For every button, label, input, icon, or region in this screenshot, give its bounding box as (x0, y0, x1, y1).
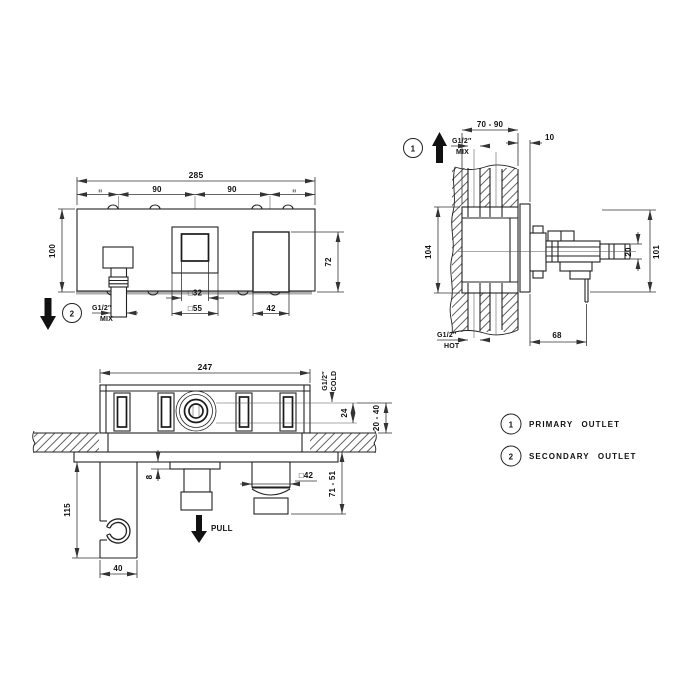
wall-plan-hatch (33, 431, 377, 453)
thread-bottom-label: G1/2″ (437, 332, 457, 339)
holder-ring-inner (110, 523, 126, 540)
up-arrow-icon (432, 132, 447, 146)
technical-drawing-canvas: 285 90 90 = = (0, 0, 700, 700)
callout-num-1: 1 (411, 145, 416, 154)
trim-plate-edge (74, 452, 338, 462)
rough-in-box-plan (100, 385, 310, 433)
dim-holder-width: 40 (113, 564, 123, 573)
dim-inner-square: □32 (188, 289, 203, 298)
dim-outer-square: □55 (188, 304, 203, 313)
thermostat-plate-front (172, 227, 218, 316)
dim-handle-square: □42 (299, 471, 314, 480)
dim-overall-width: 285 (189, 170, 204, 180)
pull-label: PULL (211, 524, 233, 533)
dim-depth-range-bottom: 20 - 40 (372, 404, 381, 431)
dim-plate-offset: 10 (545, 133, 555, 142)
handshower-holder-bottom (100, 462, 137, 558)
dim-handle-height: 72 (324, 257, 333, 267)
dim-depth-range: 70 - 90 (477, 120, 504, 129)
down-arrow-icon (40, 316, 56, 330)
pull-arrow-icon (196, 515, 202, 531)
front-view: 285 90 90 = = (40, 170, 344, 330)
equal-mark-right: = (290, 189, 296, 193)
dim-box-width: 247 (198, 362, 213, 372)
thread-right-type: COLD (331, 371, 338, 392)
dim-port-offset: 24 (340, 408, 349, 418)
thread-right-label: G1/2″ (322, 371, 329, 391)
dim-protrusion: 68 (552, 331, 562, 340)
dim-spacing-right: 90 (227, 185, 237, 194)
dim-spacing-left: 90 (152, 185, 162, 194)
equal-mark-left: = (96, 189, 102, 193)
legend-num-1: 1 (509, 421, 514, 430)
legend-label-primary: PRIMARY OUTLET (529, 420, 620, 429)
dim-handle-protrusion: 71 - 51 (328, 470, 337, 497)
thread-mix-type: MIX (100, 316, 113, 323)
dim-flange-thickness: 8 (145, 474, 154, 479)
dim-box-height: 104 (424, 245, 433, 259)
thread-bottom-type: HOT (444, 343, 460, 350)
dim-plate-height: 100 (48, 244, 57, 258)
thread-mix-label: G1/2″ (92, 305, 112, 312)
legend: 1 PRIMARY OUTLET 2 SECONDARY OUTLET (501, 414, 637, 466)
lever-handle-bottom (252, 462, 290, 514)
trim-plate-section (520, 204, 530, 292)
legend-label-secondary: SECONDARY OUTLET (529, 452, 637, 461)
dim-knob-height: 20 (624, 247, 633, 257)
dim-holder-height: 115 (63, 503, 72, 517)
rough-in-box-section (462, 207, 518, 293)
thread-top-type: MIX (456, 149, 469, 156)
mixer-installation-drawing: 285 90 90 = = (0, 0, 700, 700)
side-view: 1 G1/2″ MIX 70 - 90 10 (404, 120, 662, 350)
dim-handle-width: 42 (266, 304, 276, 313)
dim-total-height: 101 (652, 245, 661, 259)
legend-num-2: 2 (509, 453, 514, 462)
diverter-pull-knob (170, 462, 220, 510)
bottom-view: 247 24 G1/2″ (33, 362, 392, 578)
callout-num-2: 2 (70, 310, 75, 319)
